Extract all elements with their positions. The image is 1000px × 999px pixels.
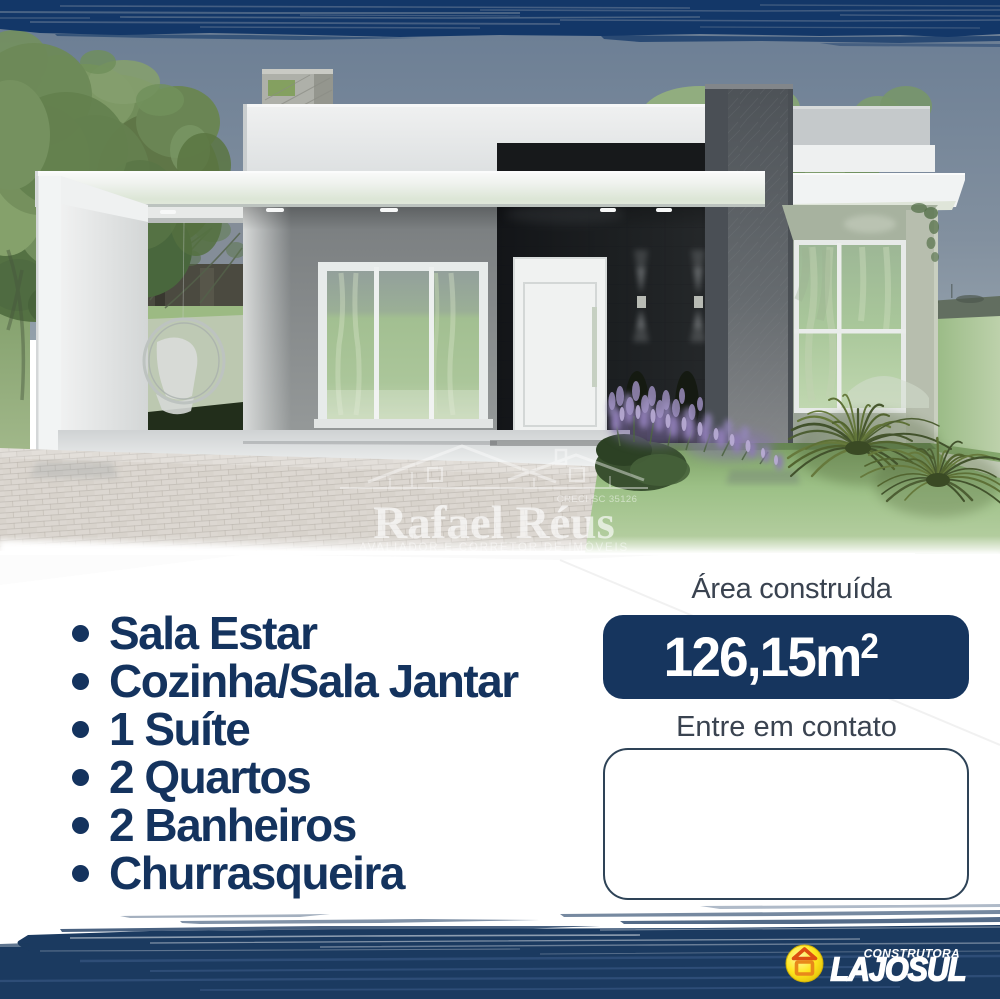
svg-text:CRECI-SC 35126: CRECI-SC 35126 <box>557 494 638 505</box>
svg-text:LAJOSUL: LAJOSUL <box>830 950 965 987</box>
